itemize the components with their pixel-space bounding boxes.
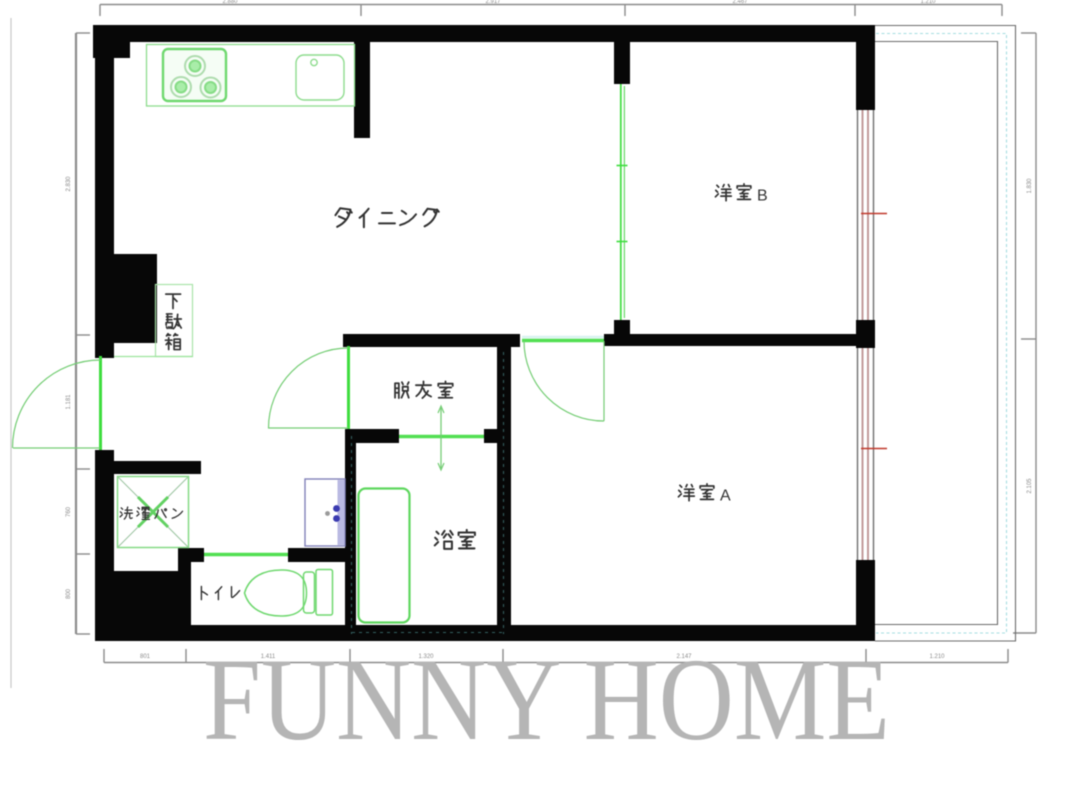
svg-text:A: A: [720, 488, 731, 505]
svg-text:B: B: [757, 188, 768, 205]
svg-text:2.917: 2.917: [485, 0, 501, 5]
svg-text:2.105: 2.105: [1027, 478, 1033, 494]
svg-text:1.830: 1.830: [1027, 178, 1033, 194]
svg-text:FUNNY HOME: FUNNY HOME: [203, 634, 890, 765]
svg-text:1.181: 1.181: [66, 394, 72, 410]
svg-text:800: 800: [66, 588, 72, 599]
svg-text:801: 801: [140, 654, 151, 660]
svg-text:760: 760: [66, 506, 72, 517]
svg-text:2.880: 2.880: [222, 0, 238, 5]
svg-text:1.210: 1.210: [920, 0, 936, 5]
svg-text:1.210: 1.210: [929, 654, 945, 660]
svg-text:2.467: 2.467: [732, 0, 748, 5]
svg-text:2.830: 2.830: [66, 176, 72, 192]
